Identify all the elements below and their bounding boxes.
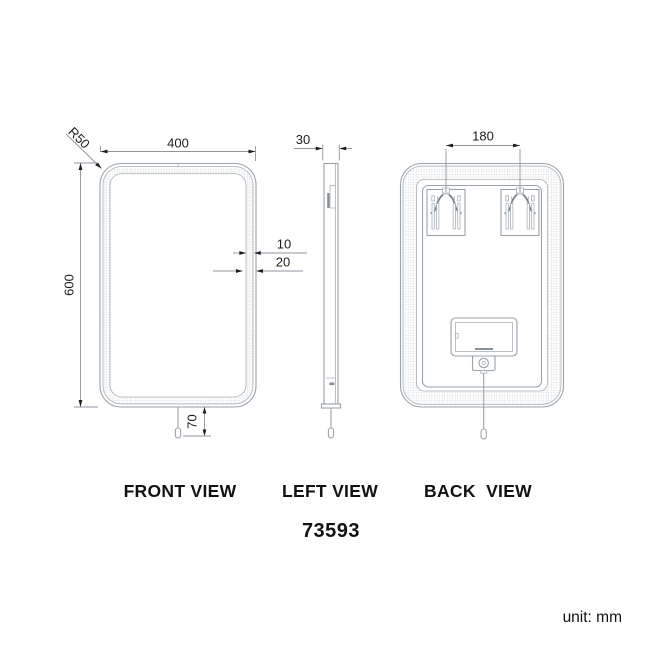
dim-cord-length: 70 (183, 407, 211, 436)
back-view (401, 164, 564, 440)
unit-note: unit: mm (563, 609, 622, 626)
front-pull-handle (175, 428, 180, 438)
dim-depth: 30 (294, 132, 352, 161)
dim-front-width: 400 (101, 136, 256, 162)
drawing-canvas: 400 R50 600 10 (0, 0, 650, 650)
dim-label-180: 180 (472, 129, 494, 144)
back-view-label: BACK VIEW (424, 481, 532, 501)
technical-drawing-page: 400 R50 600 10 (0, 0, 650, 650)
dim-label-30: 30 (296, 132, 310, 147)
left-bracket-bar (327, 193, 329, 208)
back-pull-handle (481, 429, 486, 439)
dim-label-20: 20 (276, 255, 290, 270)
labels: FRONT VIEW LEFT VIEW BACK VIEW 73593 uni… (124, 481, 622, 626)
dim-label-r50: R50 (65, 124, 92, 151)
front-mirror-face (110, 174, 246, 398)
front-view-label: FRONT VIEW (124, 481, 237, 501)
mounting-bracket-right (501, 188, 539, 236)
dim-front-height: 600 (62, 163, 99, 407)
left-view-label: LEFT VIEW (282, 481, 378, 501)
left-view (322, 164, 341, 439)
dim-label-10: 10 (277, 237, 291, 252)
dim-corner-radius: R50 (65, 124, 101, 168)
product-code: 73593 (302, 520, 360, 542)
front-view (100, 164, 256, 439)
dim-label-70: 70 (185, 414, 200, 428)
dim-label-600: 600 (62, 274, 77, 296)
junction-box-cover (456, 323, 513, 352)
mounting-bracket-left (427, 188, 465, 236)
left-bottom-flange (322, 404, 341, 408)
dim-label-400: 400 (167, 136, 189, 151)
left-switch-mark (329, 383, 334, 386)
left-pull-handle (328, 428, 333, 438)
